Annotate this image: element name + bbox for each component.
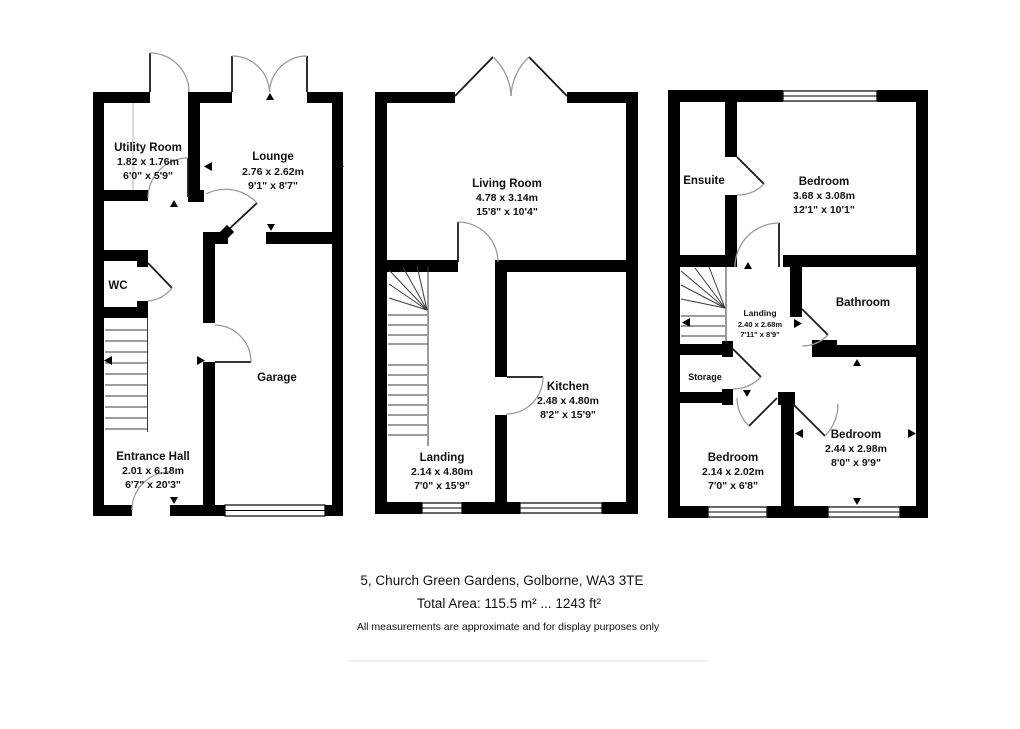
room-label-ensuite: Ensuite (683, 175, 725, 187)
room-imperial: 6'7" x 20'3" (125, 479, 181, 491)
room-label-garage: Garage (257, 372, 297, 384)
room-metric: 2.01 x 6.18m (122, 465, 184, 477)
room-label-utility: Utility Room 1.82 x 1.76m 6'0" x 5'9" (114, 142, 182, 182)
room-imperial: 15'8" x 10'4" (476, 206, 538, 218)
window (828, 507, 900, 517)
room-label-kitchen: Kitchen 2.48 x 4.80m 8'2" x 15'9" (537, 381, 599, 421)
room-metric: 1.82 x 1.76m (117, 156, 179, 168)
room-metric: 2.40 x 2.68m (738, 320, 783, 329)
room-imperial: 9'1" x 8'7" (248, 180, 298, 192)
room-label-landing-first: Landing 2.14 x 4.80m 7'0" x 15'9" (411, 452, 473, 492)
room-label-lounge: Lounge 2.76 x 2.62m 9'1" x 8'7" (242, 151, 304, 192)
room-name: Lounge (252, 151, 294, 163)
room-imperial: 12'1" x 10'1" (793, 204, 855, 216)
property-address: 5, Church Green Gardens, Golborne, WA3 3… (360, 573, 643, 588)
floorplan-drawing: Utility Room 1.82 x 1.76m 6'0" x 5'9" Lo… (0, 0, 1020, 729)
room-imperial: 7'11" x 8'9" (740, 330, 780, 339)
window (520, 503, 602, 513)
room-metric: 2.48 x 4.80m (537, 395, 599, 407)
room-imperial: 7'0" x 6'8" (708, 480, 758, 492)
garage-door-window (225, 505, 325, 516)
room-label-bedroom-bottom-left: Bedroom 2.14 x 2.02m 7'0" x 6'8" (702, 452, 764, 492)
room-label-wc: WC (108, 280, 127, 292)
room-imperial: 8'2" x 15'9" (540, 409, 596, 421)
room-name: Garage (257, 372, 297, 384)
window (708, 507, 767, 517)
room-imperial: 8'0" x 9'9" (831, 457, 881, 469)
floorplan-page: Utility Room 1.82 x 1.76m 6'0" x 5'9" Lo… (0, 0, 1020, 729)
disclaimer: All measurements are approximate and for… (357, 621, 660, 633)
room-name: Landing (743, 308, 776, 318)
room-name: Bathroom (836, 297, 890, 309)
room-name: Kitchen (547, 381, 589, 393)
doors (132, 53, 307, 510)
room-metric: 3.68 x 3.08m (793, 190, 855, 202)
room-name: Landing (420, 452, 465, 464)
room-name: Utility Room (114, 142, 182, 154)
room-label-entrance-hall: Entrance Hall 2.01 x 6.18m 6'7" x 20'3" (116, 451, 190, 491)
doors (455, 57, 567, 414)
room-name: WC (108, 280, 127, 292)
room-name: Storage (688, 372, 722, 382)
room-name: Ensuite (683, 175, 725, 187)
room-imperial: 7'0" x 15'9" (414, 480, 470, 492)
room-metric: 2.76 x 2.62m (242, 166, 304, 178)
room-label-landing-second: Landing 2.40 x 2.68m 7'11" x 8'9" (738, 308, 783, 339)
footer: 5, Church Green Gardens, Golborne, WA3 3… (348, 573, 708, 661)
staircase (681, 267, 726, 344)
room-metric: 2.44 x 2.98m (825, 443, 887, 455)
staircase (388, 266, 428, 446)
total-area: Total Area: 115.5 m² ... 1243 ft² (417, 596, 602, 611)
room-metric: 2.14 x 4.80m (411, 466, 473, 478)
room-name: Living Room (472, 178, 542, 190)
room-label-bedroom-top: Bedroom 3.68 x 3.08m 12'1" x 10'1" (793, 176, 855, 216)
walls (375, 92, 638, 514)
floor-plan-ground: Utility Room 1.82 x 1.76m 6'0" x 5'9" Lo… (93, 53, 344, 516)
room-metric: 2.14 x 2.02m (702, 466, 764, 478)
room-metric: 4.78 x 3.14m (476, 192, 538, 204)
room-label-bedroom-bottom-right: Bedroom 2.44 x 2.98m 8'0" x 9'9" (825, 429, 887, 469)
window (422, 503, 462, 513)
room-name: Bedroom (831, 429, 881, 441)
floor-plan-second: Ensuite Bedroom 3.68 x 3.08m 12'1" x 10'… (668, 90, 928, 518)
room-imperial: 6'0" x 5'9" (123, 170, 173, 182)
room-label-storage: Storage (688, 372, 722, 382)
room-name: Entrance Hall (116, 451, 190, 463)
room-name: Bedroom (799, 176, 849, 188)
room-name: Bedroom (708, 452, 758, 464)
window (783, 91, 877, 101)
room-label-living-room: Living Room 4.78 x 3.14m 15'8" x 10'4" (472, 178, 542, 218)
floor-plan-first: Living Room 4.78 x 3.14m 15'8" x 10'4" K… (375, 57, 638, 514)
staircase (105, 318, 148, 432)
direction-markers (104, 93, 344, 504)
room-label-bathroom: Bathroom (836, 297, 890, 309)
